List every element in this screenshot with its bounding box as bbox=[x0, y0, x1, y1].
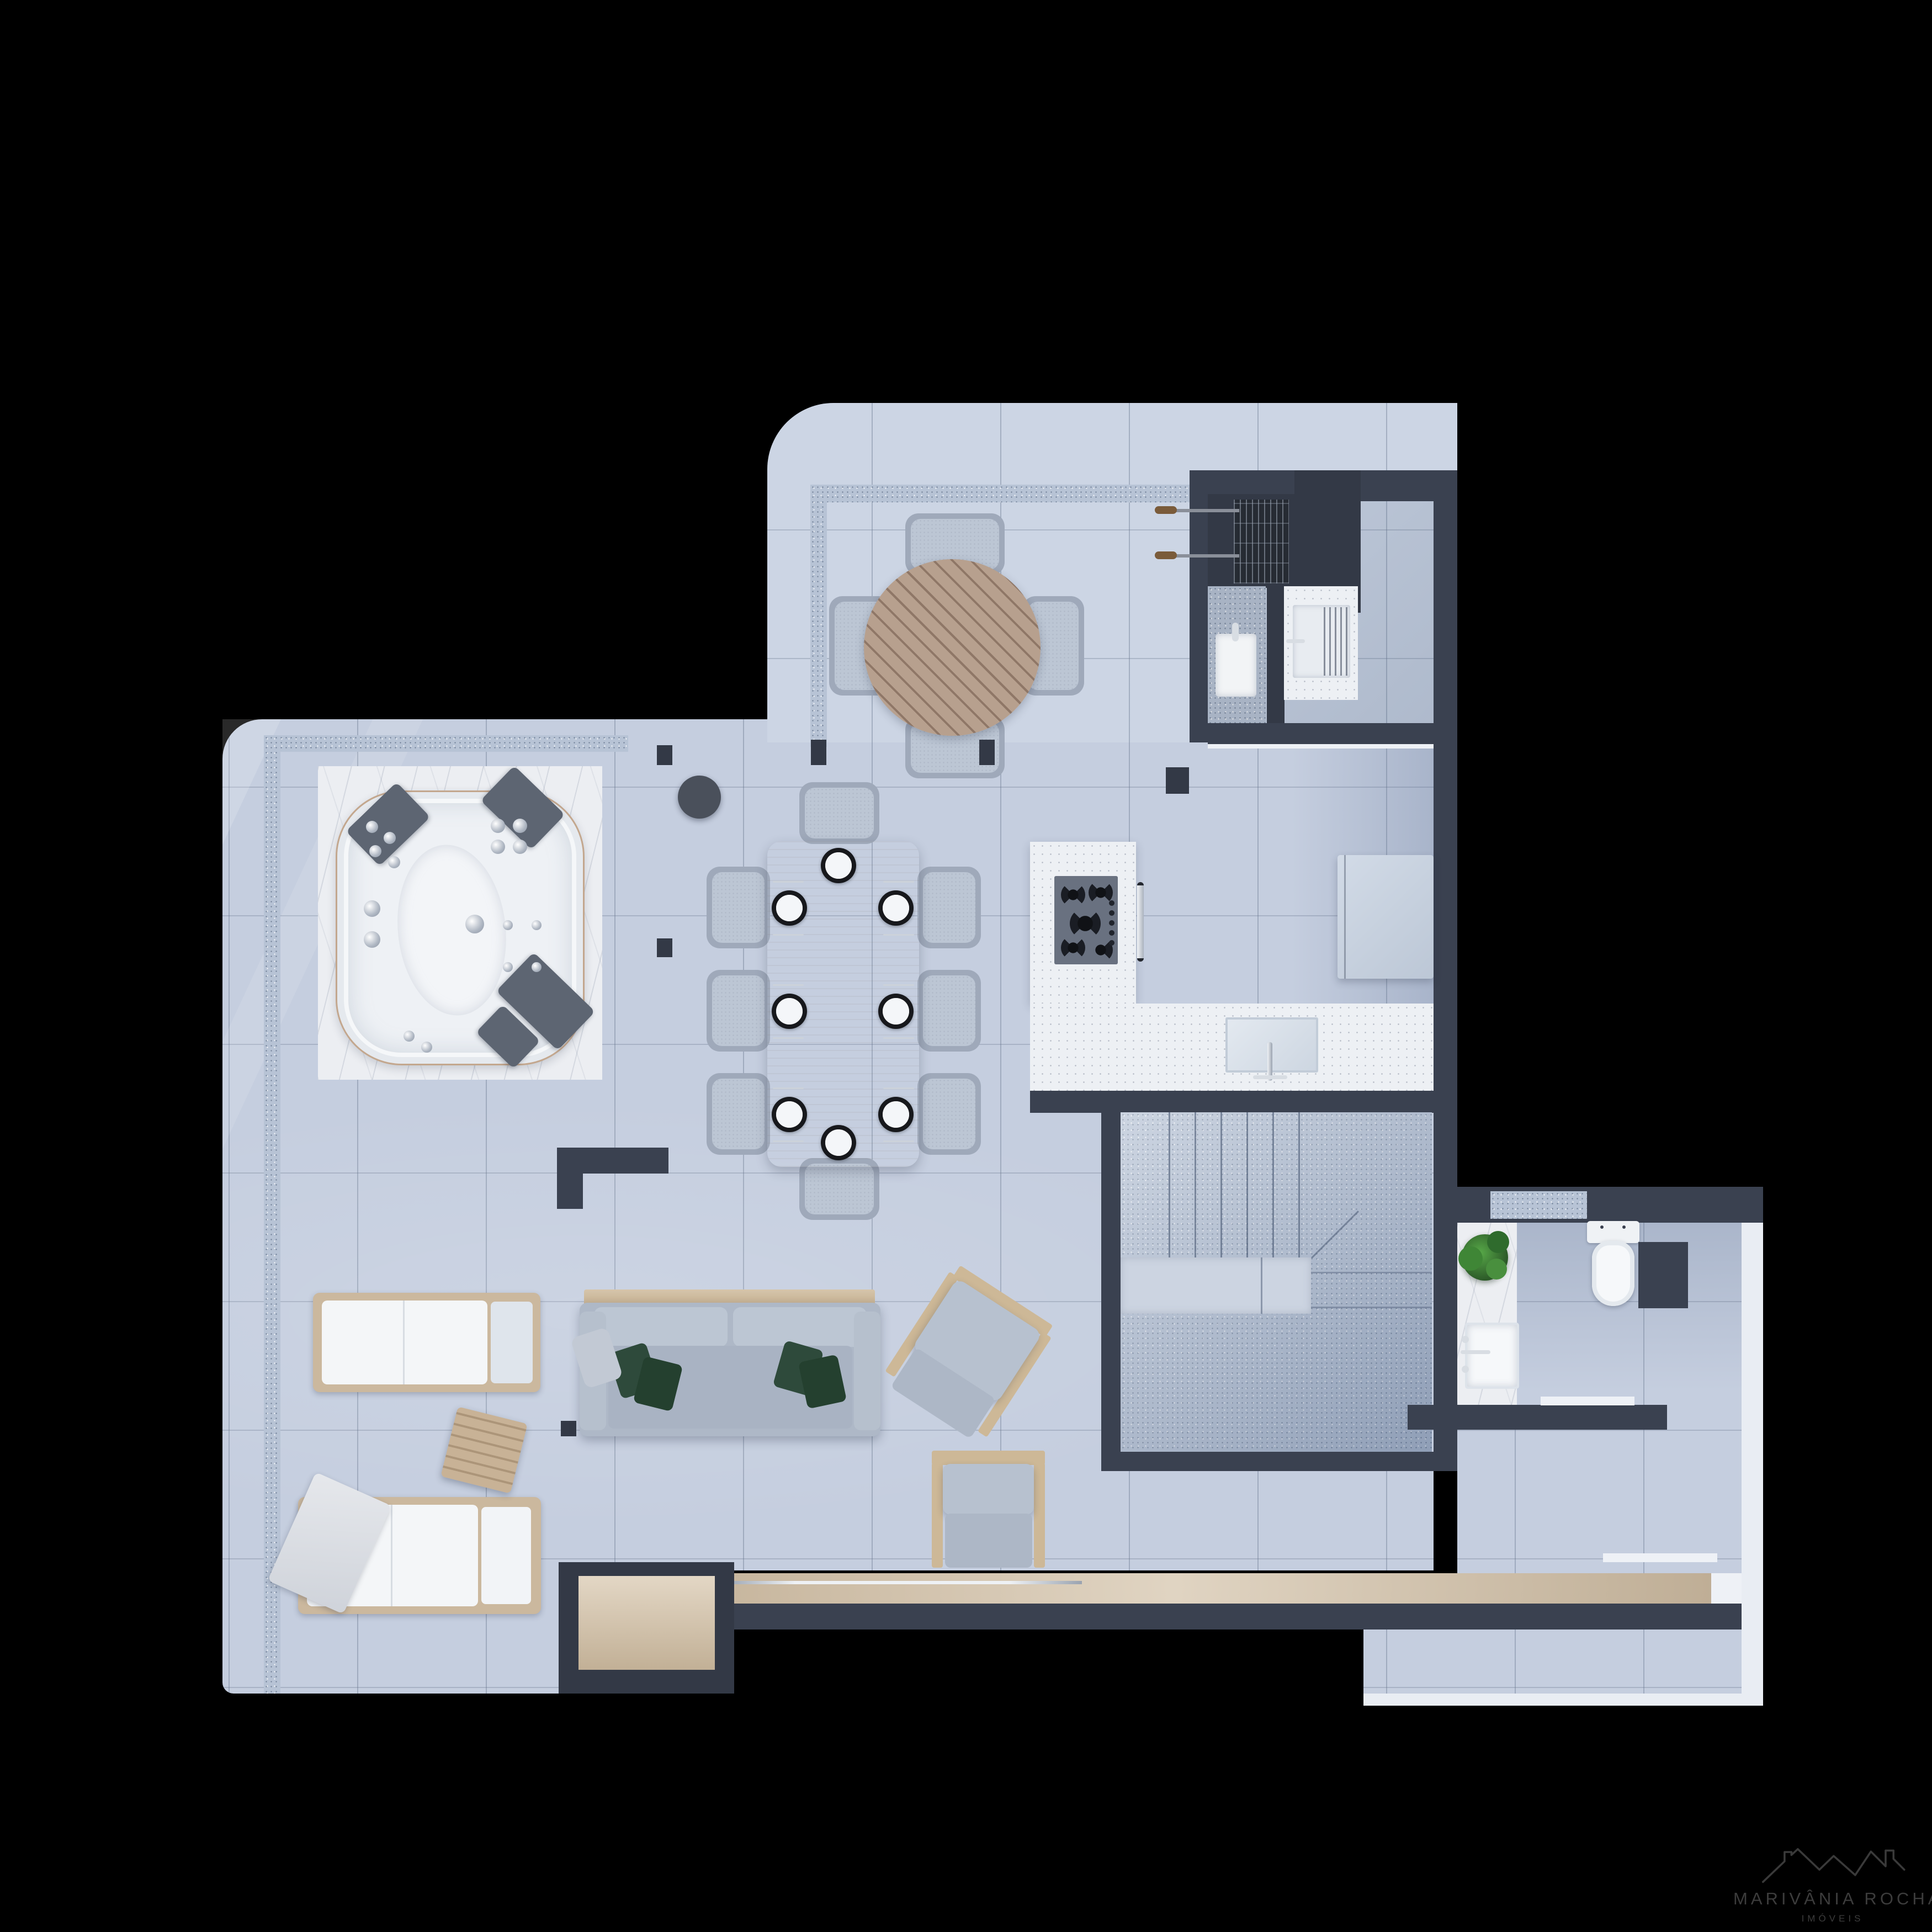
lavabo-faucet-knob bbox=[1462, 1336, 1469, 1343]
cutlery bbox=[773, 1087, 804, 1089]
threshold-hall bbox=[1603, 1553, 1717, 1562]
bbq-skewer-1-handle bbox=[1155, 506, 1177, 514]
spa-privacy-wall-h bbox=[557, 1148, 668, 1174]
cutlery bbox=[883, 934, 914, 936]
cutlery bbox=[883, 984, 914, 986]
spa-drain bbox=[465, 915, 484, 933]
hot-tub bbox=[336, 790, 585, 1065]
place-setting bbox=[772, 1097, 807, 1132]
place-setting bbox=[821, 848, 856, 883]
bbq-prep-faucet bbox=[1232, 623, 1239, 641]
parapet-bottom bbox=[1363, 1694, 1763, 1706]
threshold-lavabo bbox=[1541, 1397, 1634, 1405]
place-setting bbox=[878, 994, 914, 1029]
column-stub-2 bbox=[979, 740, 995, 765]
bbq-skewer-2-handle bbox=[1155, 551, 1177, 559]
cutlery bbox=[773, 984, 804, 986]
burner bbox=[1061, 936, 1085, 960]
cutlery bbox=[883, 1087, 914, 1089]
walkway-end-cap bbox=[1711, 1573, 1742, 1604]
lounger-1 bbox=[313, 1293, 540, 1392]
dining-chair-left-3 bbox=[707, 1073, 770, 1155]
burner bbox=[1061, 883, 1085, 907]
cutlery bbox=[883, 881, 914, 883]
wall-lavabo-right-stub bbox=[1638, 1242, 1688, 1308]
wall-lavabo-bottom bbox=[1408, 1405, 1667, 1430]
toilet-bowl bbox=[1592, 1241, 1634, 1306]
refrigerator-door-seam bbox=[1344, 855, 1346, 979]
column-stub-4 bbox=[657, 745, 672, 765]
lavabo-faucet bbox=[1461, 1350, 1490, 1354]
toilet-tank bbox=[1587, 1221, 1639, 1243]
cutlery bbox=[773, 1037, 804, 1039]
place-setting bbox=[772, 890, 807, 926]
cutlery bbox=[883, 1037, 914, 1039]
wall-walkway-band bbox=[734, 1604, 1744, 1630]
dining-chair-right-1 bbox=[917, 867, 981, 948]
dining-chair-head-top bbox=[799, 782, 879, 844]
oven-handle bbox=[1137, 882, 1144, 962]
sofa-arm-right bbox=[854, 1312, 880, 1430]
wall-stub-between-sinks bbox=[1267, 586, 1285, 723]
refrigerator bbox=[1337, 855, 1434, 979]
place-setting bbox=[878, 1097, 914, 1132]
wall-bbq-bottom bbox=[1208, 723, 1440, 744]
cutlery bbox=[773, 881, 804, 883]
column-stub-6 bbox=[561, 1421, 576, 1436]
armchair-front bbox=[932, 1451, 1045, 1578]
sofa bbox=[580, 1289, 880, 1437]
sofa-back-cushion bbox=[594, 1307, 728, 1347]
sofa-back-cushion bbox=[733, 1307, 867, 1347]
rooftops-icon bbox=[1750, 1844, 1915, 1888]
wall-stair-bottom bbox=[1101, 1452, 1457, 1471]
dining-chair-left-1 bbox=[707, 867, 770, 948]
floor-bottom-right-strip bbox=[1363, 1628, 1744, 1694]
kitchen-faucet-handle bbox=[1253, 1075, 1287, 1079]
bbq-window-sill bbox=[1208, 744, 1440, 749]
cooktop bbox=[1054, 876, 1118, 964]
floor-plan-canvas: MARIVÂNIA ROCHA IMÓVEIS bbox=[0, 0, 1932, 1932]
walkway-wood bbox=[734, 1573, 1711, 1604]
place-setting bbox=[772, 994, 807, 1029]
bbq-prep-sink bbox=[1216, 634, 1256, 697]
lavabo-sink bbox=[1465, 1323, 1519, 1389]
watermark: MARIVÂNIA ROCHA IMÓVEIS bbox=[1733, 1844, 1932, 1924]
plant bbox=[1458, 1230, 1514, 1285]
sliding-door-track bbox=[723, 1581, 1082, 1584]
cutlery bbox=[773, 1140, 804, 1142]
wall-right-main bbox=[1434, 470, 1457, 1452]
stair-landing-seam bbox=[1261, 1257, 1262, 1314]
granite-strip-left-v bbox=[264, 735, 280, 1694]
watermark-tagline: IMÓVEIS bbox=[1733, 1913, 1932, 1924]
column-stub-5 bbox=[657, 938, 672, 957]
toilet bbox=[1587, 1221, 1639, 1307]
staircase bbox=[1121, 1112, 1432, 1452]
round-slatted-table bbox=[864, 559, 1041, 736]
burner-large bbox=[1070, 908, 1101, 939]
cutlery bbox=[773, 934, 804, 936]
bbq-skewer-2 bbox=[1167, 554, 1239, 558]
bbq-skewer-1 bbox=[1167, 509, 1239, 512]
granite-sill-lavabo bbox=[1490, 1191, 1587, 1219]
lavabo-faucet-knob bbox=[1462, 1366, 1469, 1373]
granite-strip-top-terrace-h bbox=[810, 485, 1190, 502]
dining-chair-head-bottom bbox=[799, 1158, 879, 1220]
place-setting bbox=[821, 1125, 856, 1160]
bbq-sink-drainboard bbox=[1324, 607, 1348, 676]
dining-chair-right-2 bbox=[917, 970, 981, 1052]
watermark-brand: MARIVÂNIA ROCHA bbox=[1733, 1889, 1932, 1909]
place-setting bbox=[878, 890, 914, 926]
bbq-wash-faucet bbox=[1286, 639, 1305, 643]
cutlery bbox=[883, 1140, 914, 1142]
dining-chair-left-2 bbox=[707, 970, 770, 1052]
parapet-right bbox=[1742, 1223, 1763, 1706]
granite-strip-top-terrace-v bbox=[810, 485, 827, 747]
column-stub-1 bbox=[811, 740, 826, 765]
column-stub-3 bbox=[1166, 767, 1189, 794]
spa-privacy-wall-v bbox=[557, 1174, 583, 1209]
granite-strip-spa-h bbox=[264, 735, 628, 752]
wall-stair-left bbox=[1101, 1111, 1121, 1471]
stair-diagonal-seam bbox=[1311, 1211, 1359, 1259]
wall-under-counter bbox=[1030, 1091, 1434, 1113]
bbq-grill-grate bbox=[1234, 500, 1289, 583]
dining-chair-right-3 bbox=[917, 1073, 981, 1155]
side-table-round bbox=[678, 776, 721, 819]
planter-deck bbox=[578, 1576, 715, 1670]
stair-landing bbox=[1121, 1257, 1311, 1314]
